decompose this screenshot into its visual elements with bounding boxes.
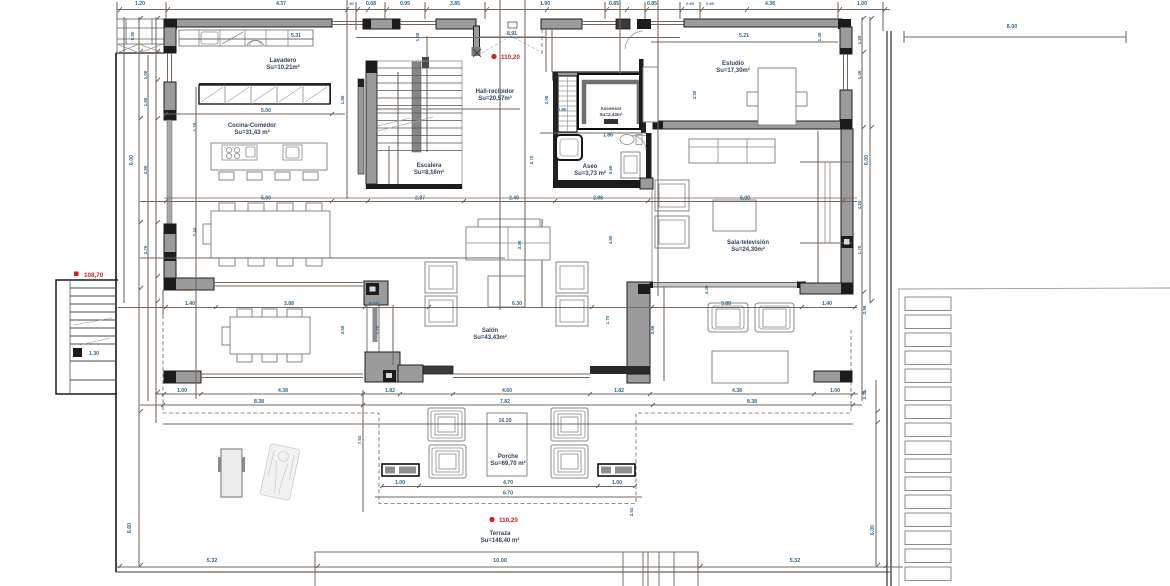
svg-text:Hall-recibidor: Hall-recibidor bbox=[476, 89, 515, 95]
svg-text:1.70: 1.70 bbox=[857, 245, 862, 254]
svg-text:16.20: 16.20 bbox=[499, 418, 512, 424]
svg-text:.30: .30 bbox=[348, 1, 354, 6]
svg-text:4.38: 4.38 bbox=[732, 388, 742, 394]
svg-text:(0.80): (0.80) bbox=[369, 301, 381, 306]
svg-text:Su=69,70 m²: Su=69,70 m² bbox=[490, 460, 525, 467]
svg-text:1.82: 1.82 bbox=[385, 388, 395, 394]
svg-text:2.08: 2.08 bbox=[544, 95, 549, 104]
svg-text:6.00: 6.00 bbox=[870, 525, 876, 535]
svg-text:Su=24,30m²: Su=24,30m² bbox=[731, 246, 765, 253]
svg-text:4.38: 4.38 bbox=[765, 1, 775, 7]
svg-text:3.88: 3.88 bbox=[721, 301, 731, 307]
svg-text:3.88: 3.88 bbox=[284, 301, 294, 307]
svg-text:1.20: 1.20 bbox=[135, 1, 145, 7]
svg-text:3.30: 3.30 bbox=[692, 90, 697, 99]
svg-text:5.32: 5.32 bbox=[207, 558, 218, 564]
svg-text:0.85: 0.85 bbox=[647, 1, 657, 7]
svg-text:2.70: 2.70 bbox=[529, 155, 534, 164]
svg-text:1.90: 1.90 bbox=[540, 1, 550, 7]
svg-text:Su=20,57m²: Su=20,57m² bbox=[478, 95, 512, 102]
svg-text:Su=148,40 m²: Su=148,40 m² bbox=[481, 537, 520, 544]
svg-text:6.70: 6.70 bbox=[503, 491, 513, 497]
svg-text:4.70: 4.70 bbox=[503, 480, 513, 486]
svg-text:4.37: 4.37 bbox=[276, 1, 286, 7]
svg-text:Sala-televisión: Sala-televisión bbox=[727, 240, 769, 246]
svg-text:2.87: 2.87 bbox=[415, 196, 425, 202]
svg-text:Su=10,21m²: Su=10,21m² bbox=[266, 64, 300, 71]
svg-text:3.36: 3.36 bbox=[517, 240, 522, 249]
svg-text:1.40: 1.40 bbox=[415, 32, 420, 41]
svg-text:2.54: 2.54 bbox=[629, 507, 634, 516]
svg-text:Porche: Porche bbox=[498, 454, 519, 460]
svg-text:5.00: 5.00 bbox=[261, 196, 271, 202]
svg-text:Estudio: Estudio bbox=[722, 61, 744, 67]
svg-text:5.32: 5.32 bbox=[790, 558, 801, 564]
svg-text:3.56: 3.56 bbox=[340, 325, 345, 334]
svg-text:1.20: 1.20 bbox=[857, 35, 862, 44]
svg-text:0.95: 0.95 bbox=[686, 1, 695, 6]
svg-text:1.00: 1.00 bbox=[395, 480, 405, 486]
svg-text:1.40: 1.40 bbox=[822, 301, 832, 307]
svg-text:6.00: 6.00 bbox=[129, 155, 135, 165]
svg-text:1.00: 1.00 bbox=[857, 1, 867, 7]
svg-text:Cocina-Comedor: Cocina-Comedor bbox=[228, 123, 277, 129]
svg-text:6.60: 6.60 bbox=[127, 523, 133, 533]
svg-text:5.21: 5.21 bbox=[739, 33, 749, 39]
svg-text:7.54: 7.54 bbox=[357, 435, 362, 444]
svg-text:3.85: 3.85 bbox=[450, 1, 460, 7]
svg-text:Su=43,43m²: Su=43,43m² bbox=[473, 334, 507, 341]
svg-text:1.40: 1.40 bbox=[817, 32, 822, 41]
svg-text:6.00: 6.00 bbox=[864, 155, 870, 165]
svg-text:2.76: 2.76 bbox=[143, 245, 148, 254]
svg-text:110,20: 110,20 bbox=[501, 54, 520, 61]
svg-text:0.08: 0.08 bbox=[366, 1, 376, 7]
svg-text:Salón: Salón bbox=[482, 328, 499, 334]
svg-text:1.90: 1.90 bbox=[143, 97, 148, 106]
svg-text:1.00: 1.00 bbox=[612, 480, 622, 486]
svg-text:3.56: 3.56 bbox=[650, 325, 655, 334]
svg-text:8.38: 8.38 bbox=[747, 399, 757, 405]
svg-text:1.70: 1.70 bbox=[605, 315, 610, 324]
svg-text:108,70: 108,70 bbox=[84, 272, 104, 279]
svg-text:0.95: 0.95 bbox=[400, 1, 410, 7]
svg-text:4.60: 4.60 bbox=[502, 388, 512, 394]
svg-text:1.86: 1.86 bbox=[340, 95, 345, 104]
svg-text:Su=8,16m²: Su=8,16m² bbox=[414, 169, 444, 176]
svg-text:Aseo: Aseo bbox=[583, 164, 598, 170]
svg-text:1.00: 1.00 bbox=[143, 70, 148, 79]
svg-text:10.00: 10.00 bbox=[493, 558, 507, 564]
svg-text:8.91: 8.91 bbox=[507, 31, 517, 37]
svg-text:2.98: 2.98 bbox=[862, 305, 867, 314]
svg-text:2.98: 2.98 bbox=[593, 196, 603, 202]
svg-text:6.00: 6.00 bbox=[740, 196, 750, 202]
svg-text:0.80: 0.80 bbox=[558, 107, 567, 112]
svg-text:Su=31,43 m²: Su=31,43 m² bbox=[234, 129, 269, 136]
svg-text:Su=3,73 m²: Su=3,73 m² bbox=[574, 170, 606, 177]
svg-text:1.40: 1.40 bbox=[185, 301, 195, 307]
svg-text:4.40: 4.40 bbox=[704, 285, 709, 294]
svg-text:0.90: 0.90 bbox=[130, 31, 135, 40]
svg-text:4.60: 4.60 bbox=[608, 235, 613, 244]
svg-text:6.30: 6.30 bbox=[512, 301, 522, 307]
svg-text:1.00: 1.00 bbox=[830, 388, 840, 394]
svg-text:Lavadero: Lavadero bbox=[270, 58, 297, 64]
svg-text:0.85: 0.85 bbox=[609, 1, 619, 7]
svg-text:Ascensor: Ascensor bbox=[601, 106, 622, 111]
svg-text:Su=2,43m²: Su=2,43m² bbox=[599, 112, 623, 117]
svg-text:Terraza: Terraza bbox=[490, 531, 512, 537]
svg-text:4.38: 4.38 bbox=[278, 388, 288, 394]
svg-text:1.86: 1.86 bbox=[603, 133, 613, 139]
svg-text:1.70: 1.70 bbox=[375, 325, 380, 334]
svg-text:2.40: 2.40 bbox=[509, 196, 519, 202]
svg-text:4.20: 4.20 bbox=[857, 200, 862, 209]
svg-text:8.38: 8.38 bbox=[254, 399, 264, 405]
svg-text:8.00: 8.00 bbox=[1007, 24, 1018, 30]
svg-text:1.46: 1.46 bbox=[857, 70, 862, 79]
svg-text:Escalera: Escalera bbox=[417, 163, 442, 169]
svg-text:110,20: 110,20 bbox=[499, 517, 518, 524]
svg-text:1.82: 1.82 bbox=[614, 388, 624, 394]
svg-text:7.82: 7.82 bbox=[500, 399, 510, 405]
svg-text:5.31: 5.31 bbox=[291, 33, 301, 39]
svg-text:0.60: 0.60 bbox=[608, 165, 613, 174]
svg-text:1.00: 1.00 bbox=[177, 388, 187, 394]
svg-text:3.90: 3.90 bbox=[143, 165, 148, 174]
svg-text:5.00: 5.00 bbox=[261, 108, 271, 114]
svg-text:Su=17,30m²: Su=17,30m² bbox=[716, 67, 750, 74]
svg-text:0.95: 0.95 bbox=[706, 1, 715, 6]
svg-text:1.30: 1.30 bbox=[89, 351, 99, 357]
